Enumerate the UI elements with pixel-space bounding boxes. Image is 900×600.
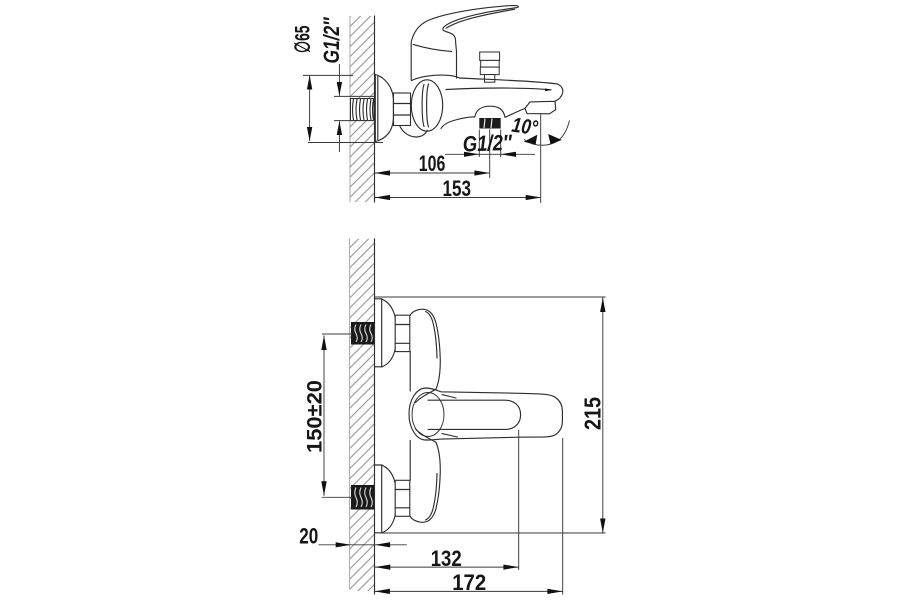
svg-text:∅65: ∅65 bbox=[292, 25, 315, 53]
svg-text:132: 132 bbox=[431, 546, 462, 571]
svg-text:G1/2″: G1/2″ bbox=[319, 16, 344, 63]
svg-text:215: 215 bbox=[580, 397, 606, 430]
svg-text:150±20: 150±20 bbox=[304, 380, 327, 453]
svg-text:20: 20 bbox=[299, 524, 318, 549]
svg-text:G1/2″: G1/2″ bbox=[462, 130, 513, 157]
svg-text:106: 106 bbox=[419, 151, 446, 176]
svg-text:153: 153 bbox=[443, 176, 472, 201]
svg-text:172: 172 bbox=[452, 570, 486, 595]
